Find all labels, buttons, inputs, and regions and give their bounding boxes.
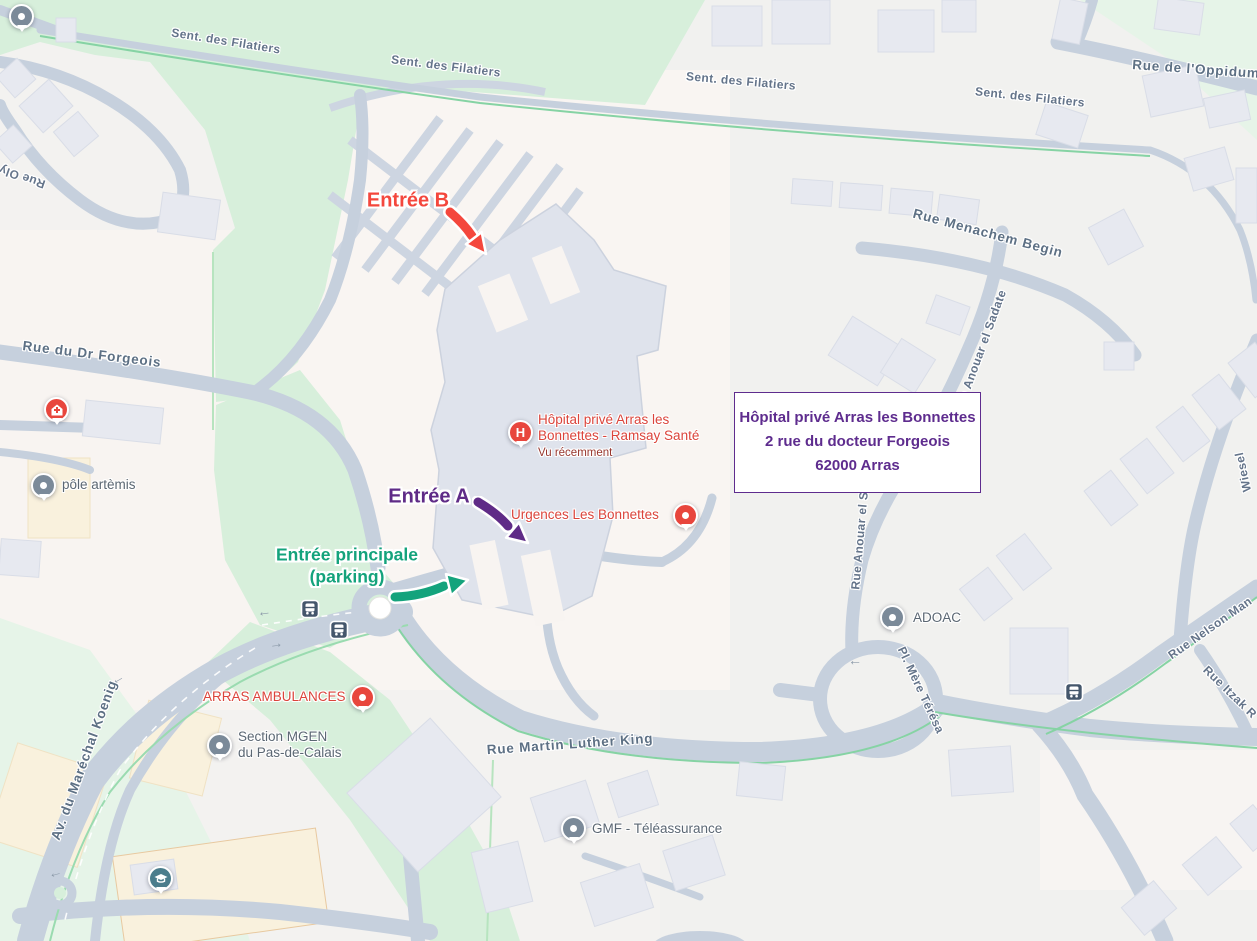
map-canvas[interactable]: Sent. des Filatiers Sent. des Filatiers …: [0, 0, 1257, 941]
building: [839, 183, 883, 211]
arras-ambulances-label[interactable]: ARRAS AMBULANCES: [203, 689, 346, 705]
building: [157, 192, 220, 240]
pin-dot-icon: [359, 694, 366, 701]
entree-b-arrow: [442, 204, 500, 264]
building: [948, 746, 1013, 796]
building: [580, 864, 653, 927]
pin-dot-icon: [570, 825, 577, 832]
building: [1154, 0, 1204, 35]
entree-a-arrow: [472, 496, 536, 552]
building: [0, 539, 41, 578]
entree-principale-arrow: [388, 562, 474, 606]
address-info-box: Hôpital privé Arras les Bonnettes 2 rue …: [734, 392, 981, 493]
pole-artemis-label[interactable]: pôle artèmis: [62, 477, 136, 493]
arras-ambulances-pin[interactable]: [350, 685, 375, 710]
mgen-pin[interactable]: [207, 733, 232, 758]
building: [1010, 628, 1068, 694]
pin-dot-icon: [682, 512, 689, 519]
adoac-pin[interactable]: [880, 605, 905, 630]
annotation-entree-principale-line2: (parking): [310, 567, 385, 588]
medical-house-cross-icon: [51, 404, 63, 416]
map-base-layer: [0, 0, 1257, 941]
bus-stop-icon[interactable]: [331, 622, 348, 639]
medical-poi-pin[interactable]: [44, 397, 69, 422]
building: [942, 0, 976, 32]
bus-stop-icon[interactable]: [1066, 684, 1083, 701]
mgen-label[interactable]: Section MGEN du Pas-de-Calais: [238, 729, 342, 760]
building: [1236, 168, 1257, 223]
annotation-entree-a: Entrée A: [388, 486, 470, 509]
pin-dot-icon: [18, 13, 25, 20]
pin-dot-icon: [216, 742, 223, 749]
pole-artemis-pin[interactable]: [31, 473, 56, 498]
mgen-label-line2: du Pas-de-Calais: [238, 745, 342, 761]
direction-arrow-icon: →: [268, 634, 284, 652]
bus-stop-icon[interactable]: [302, 601, 319, 618]
direction-arrow-icon: ←: [848, 652, 862, 668]
hospital-pin-letter: H: [516, 425, 525, 440]
hospital-label[interactable]: Hôpital privé Arras les Bonnettes - Rams…: [538, 412, 716, 462]
school-pin[interactable]: [148, 866, 173, 891]
building: [772, 0, 830, 44]
building: [878, 10, 934, 52]
building: [82, 400, 163, 444]
mgen-label-line1: Section MGEN: [238, 729, 342, 745]
hospital-pin[interactable]: H: [508, 420, 533, 445]
building: [53, 111, 98, 156]
building: [736, 762, 785, 801]
urgences-pin[interactable]: [673, 503, 698, 528]
building: [791, 179, 833, 207]
building: [56, 18, 76, 42]
address-line3: 62000 Arras: [735, 454, 980, 478]
hospital-status: Vu récemment: [538, 446, 716, 462]
poi-pin[interactable]: [9, 4, 34, 29]
graduation-cap-icon: [154, 873, 168, 885]
building: [607, 770, 658, 817]
annotation-entree-b: Entrée B: [367, 190, 449, 213]
pin-dot-icon: [40, 482, 47, 489]
address-line2: 2 rue du docteur Forgeois: [735, 430, 980, 454]
building: [1104, 342, 1134, 370]
pin-dot-icon: [889, 614, 896, 621]
building: [712, 6, 762, 46]
hospital-name: Hôpital privé Arras les Bonnettes - Rams…: [538, 412, 699, 443]
gmf-label[interactable]: GMF - Téléassurance: [592, 821, 722, 837]
gmf-pin[interactable]: [561, 816, 586, 841]
adoac-label[interactable]: ADOAC: [913, 610, 961, 626]
direction-arrow-icon: ←: [256, 602, 272, 620]
address-line1: Hôpital privé Arras les Bonnettes: [735, 406, 980, 430]
